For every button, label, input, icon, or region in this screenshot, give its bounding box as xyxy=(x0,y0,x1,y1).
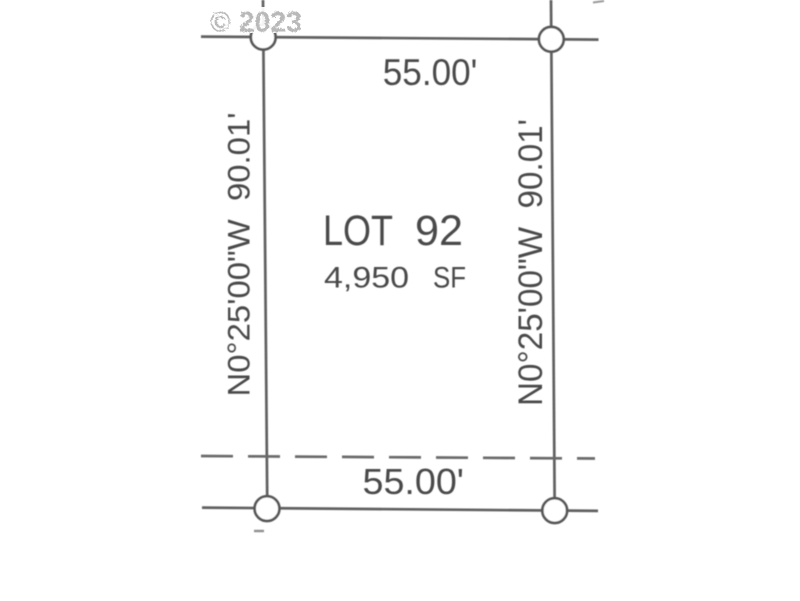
svg-text:92: 92 xyxy=(415,208,463,255)
svg-text:4,950: 4,950 xyxy=(324,262,409,295)
svg-text:55.00': 55.00' xyxy=(363,461,465,502)
svg-text:© 2023: © 2023 xyxy=(209,6,301,38)
svg-text:SF: SF xyxy=(433,262,466,295)
svg-text:55.00': 55.00' xyxy=(383,52,478,93)
svg-text:LOT: LOT xyxy=(323,208,393,255)
svg-text:N0°25'00"W 90.01': N0°25'00"W 90.01' xyxy=(221,113,257,397)
svg-text:N0°25'00"W 90.01': N0°25'00"W 90.01' xyxy=(512,119,550,406)
